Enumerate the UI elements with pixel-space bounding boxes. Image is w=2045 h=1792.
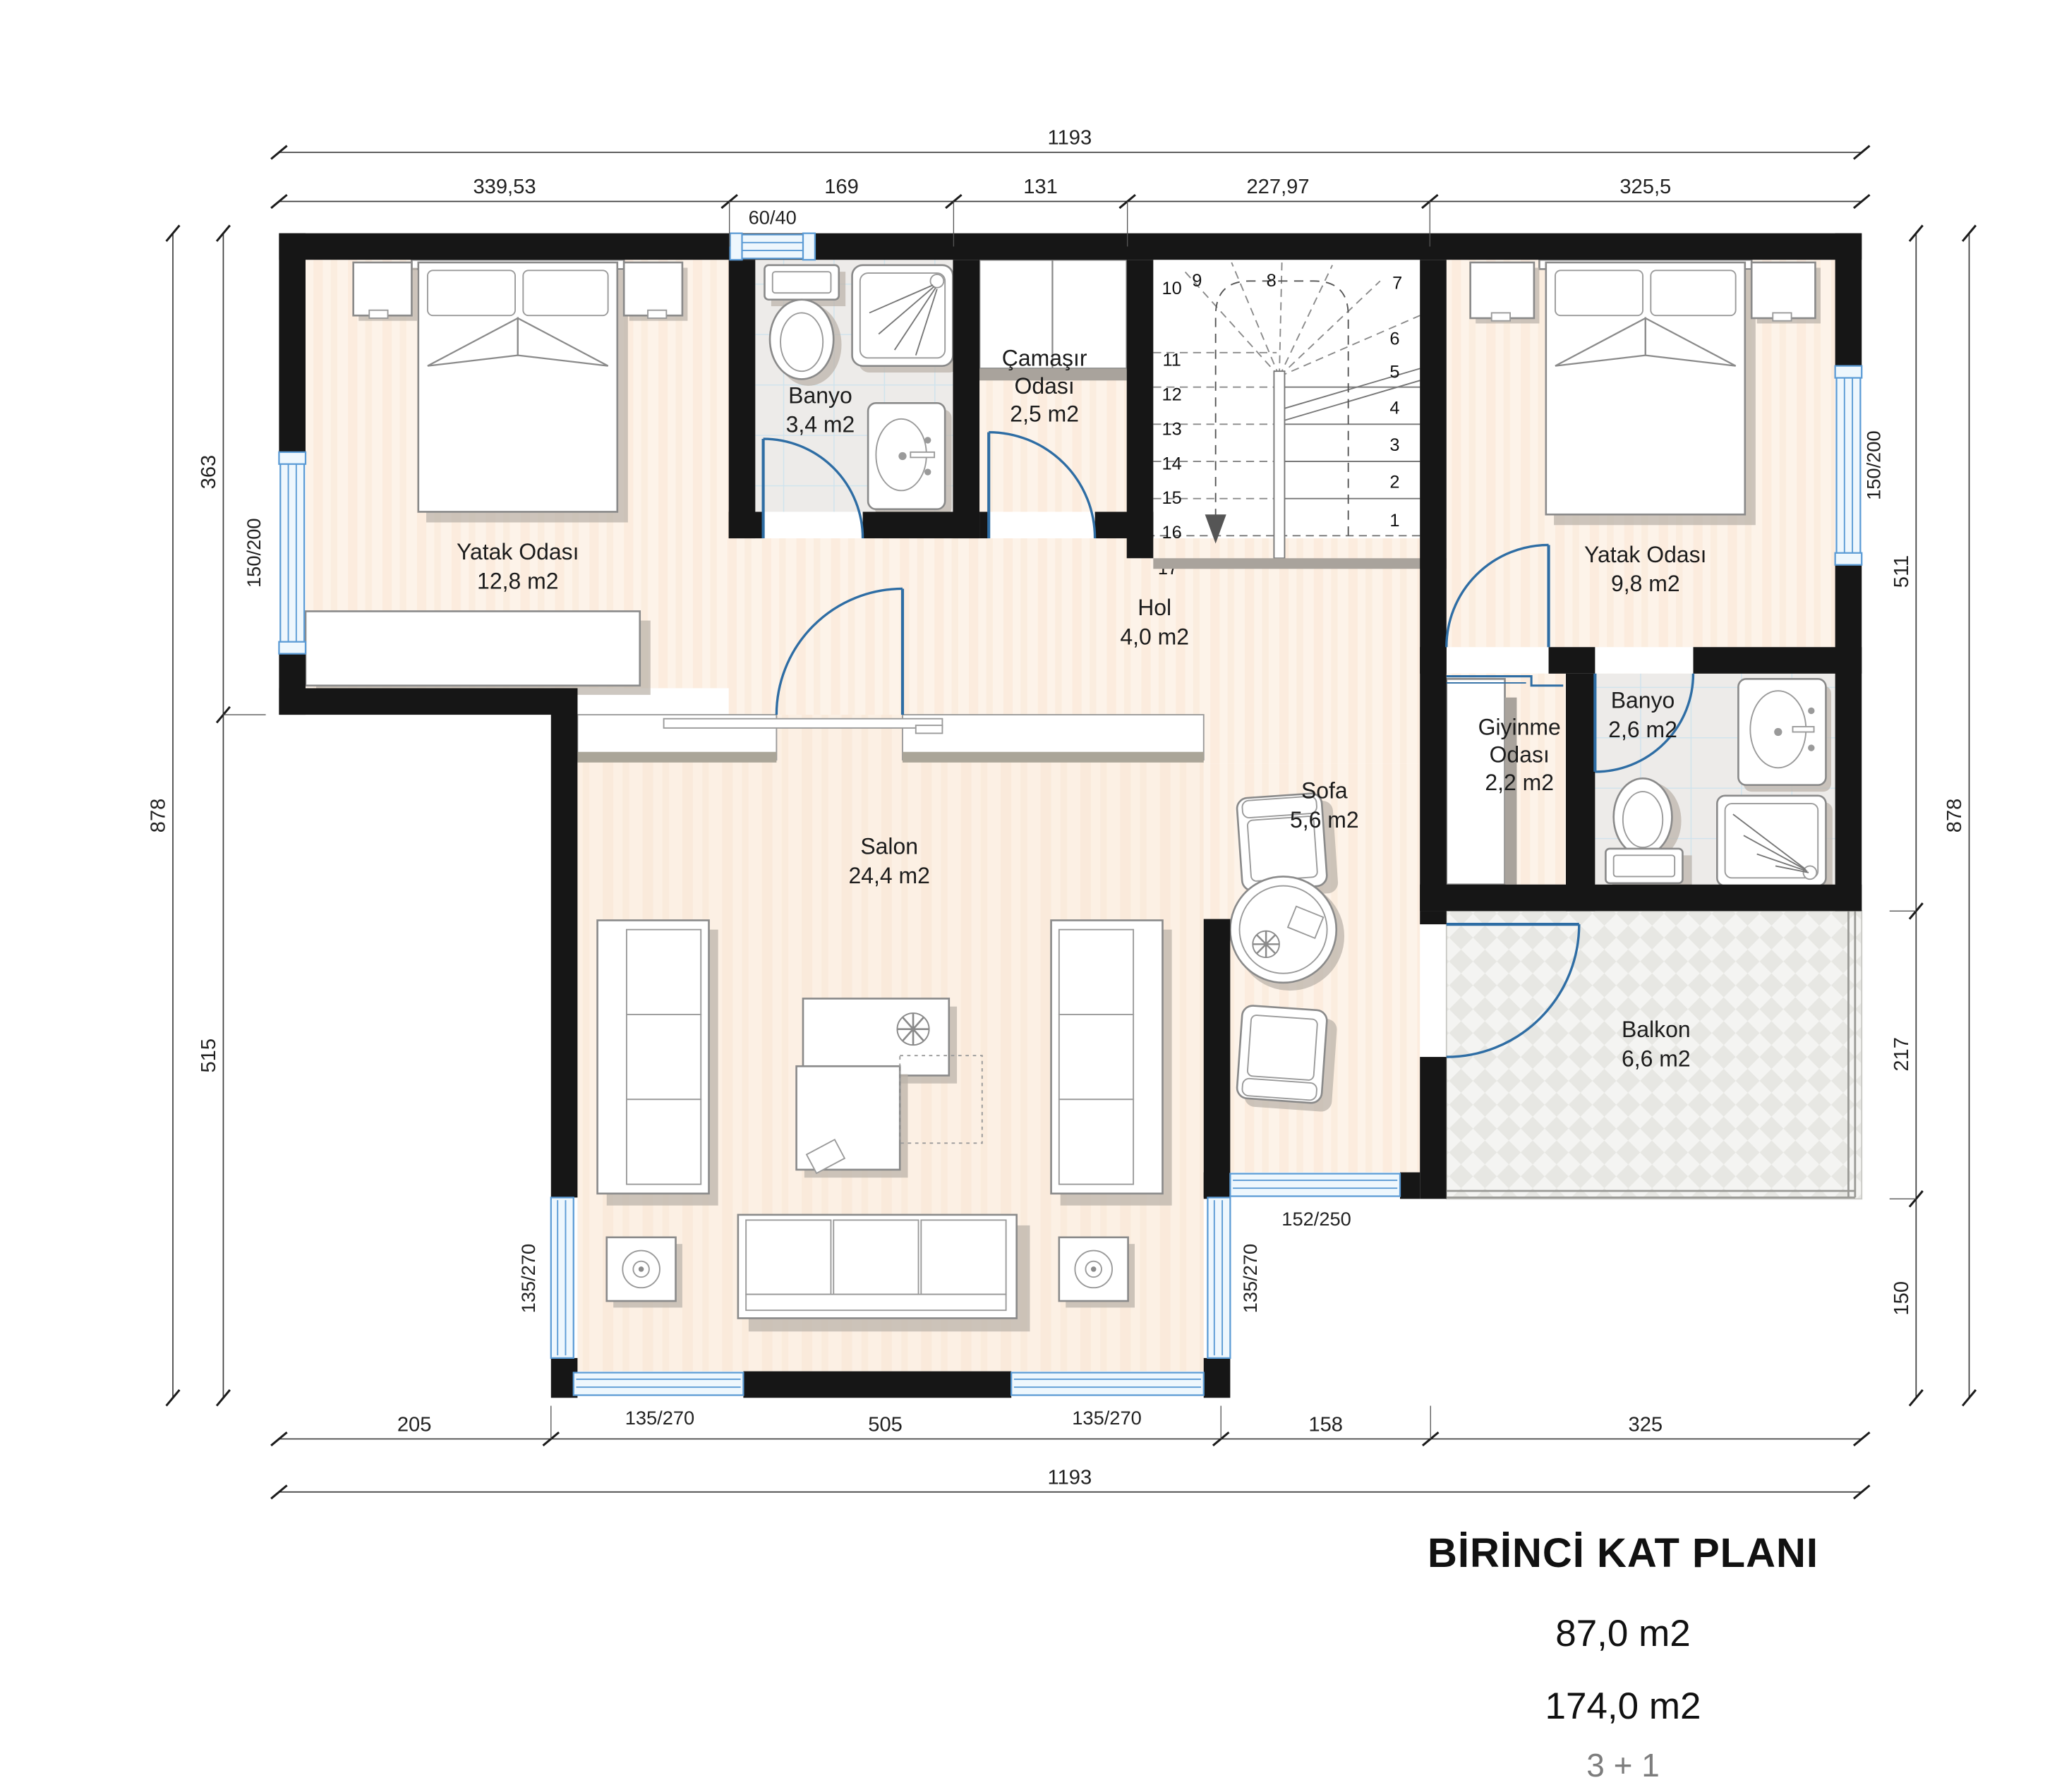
window-salon-bottom-right xyxy=(1011,1373,1204,1396)
sitting-label: Sofa xyxy=(1301,778,1348,804)
hall-area: 4,0 m2 xyxy=(1120,624,1189,649)
dresser xyxy=(306,611,651,694)
plan-title: BİRİNCİ KAT PLANI xyxy=(1305,1530,1941,1577)
shower-right xyxy=(1717,796,1833,892)
stair-number: 8 xyxy=(1267,271,1277,291)
sofa-left xyxy=(598,920,718,1205)
window-label: 135/270 xyxy=(1239,1244,1261,1314)
window-salon-left xyxy=(551,1197,574,1357)
living-area: 24,4 m2 xyxy=(848,863,929,888)
armchair-bottom xyxy=(1236,1005,1338,1113)
window-salon-bottom-left xyxy=(574,1373,744,1396)
dim-bottom-seg: 205 xyxy=(397,1413,432,1436)
stair-railing xyxy=(1274,371,1284,558)
laundry-label2: Odası xyxy=(1015,373,1075,399)
bedroom-left-area: 12,8 m2 xyxy=(477,568,558,593)
window-salon-right xyxy=(1207,1197,1230,1357)
dressing-label2: Odası xyxy=(1490,742,1550,768)
hall-label: Hol xyxy=(1138,595,1171,620)
bathroom-top-label: Banyo xyxy=(788,382,852,408)
stair-number: 1 xyxy=(1389,511,1399,531)
stair-number: 5 xyxy=(1389,363,1399,382)
dim-left-seg: 515 xyxy=(198,1039,220,1073)
window-bath-small xyxy=(730,234,815,260)
window-label: 150/200 xyxy=(243,518,265,588)
window-label: 152/250 xyxy=(1281,1208,1351,1230)
stairs-floor xyxy=(1153,260,1420,558)
bathroom-top-area: 3,4 m2 xyxy=(786,412,855,437)
dim-top-total: 1193 xyxy=(1048,127,1092,150)
window-right-bedroom xyxy=(1835,366,1862,565)
stair-number: 9 xyxy=(1192,271,1202,291)
window-label: 150/200 xyxy=(1863,430,1885,500)
stair-number: 12 xyxy=(1162,385,1182,405)
floor-area: 87,0 m2 xyxy=(1305,1612,1941,1655)
bedroom-right-label: Yatak Odası xyxy=(1584,542,1706,567)
dim-bottom-seg: 325 xyxy=(1628,1413,1663,1436)
dim-left-seg: 363 xyxy=(198,455,220,490)
dim-top-seg: 169 xyxy=(824,176,859,198)
title-block: BİRİNCİ KAT PLANI 87,0 m2 174,0 m2 3 + 1 xyxy=(1305,1530,1941,1784)
window-label: 135/270 xyxy=(517,1244,539,1314)
dim-right-seg: 511 xyxy=(1890,555,1913,588)
stair-number: 14 xyxy=(1162,454,1182,473)
laundry-label: Çamaşır xyxy=(1002,346,1087,371)
shower-top xyxy=(852,265,960,373)
laundry-area: 2,5 m2 xyxy=(1010,401,1079,427)
dim-left-outer: 878 xyxy=(147,799,170,833)
sofa-right xyxy=(1051,920,1172,1205)
dim-right-seg: 217 xyxy=(1890,1037,1913,1072)
bathroom-right-area: 2,6 m2 xyxy=(1608,717,1677,742)
window-label: 135/270 xyxy=(625,1407,695,1429)
stair-number: 13 xyxy=(1162,419,1182,439)
stair-number: 2 xyxy=(1389,473,1399,492)
sofa-bottom xyxy=(738,1215,1030,1331)
plant-icon xyxy=(1253,931,1279,958)
sink-right xyxy=(1738,679,1831,792)
stair-number: 7 xyxy=(1392,274,1402,293)
total-area: 174,0 m2 xyxy=(1305,1685,1941,1728)
floor-plan-drawing: 1 2 3 4 5 6 7 8 9 10 11 12 13 14 15 16 1… xyxy=(92,63,2045,1721)
stair-number: 3 xyxy=(1389,435,1399,455)
dressing-area: 2,2 m2 xyxy=(1485,770,1554,795)
stair-landing-edge xyxy=(1153,558,1446,569)
bathroom-right-label: Banyo xyxy=(1611,688,1675,713)
dim-bottom-total: 1193 xyxy=(1048,1466,1092,1489)
stair-number: 4 xyxy=(1389,398,1399,418)
stair-number: 16 xyxy=(1162,523,1182,543)
dim-right-outer: 878 xyxy=(1943,799,1966,833)
stair-number: 11 xyxy=(1162,351,1181,370)
balcony-label: Balkon xyxy=(1622,1017,1691,1042)
stair-number: 6 xyxy=(1389,329,1399,349)
sink-top xyxy=(868,403,951,516)
stair-number: 15 xyxy=(1162,488,1182,508)
dim-top-seg: 339,53 xyxy=(473,176,536,198)
window-label: 60/40 xyxy=(749,206,797,228)
sitting-area: 5,6 m2 xyxy=(1290,807,1359,833)
plant-icon xyxy=(897,1013,929,1045)
stair-number: 10 xyxy=(1162,279,1182,298)
window-sofa-bottom xyxy=(1230,1174,1400,1197)
bedroom-right-area: 9,8 m2 xyxy=(1611,571,1680,596)
dim-right-seg: 150 xyxy=(1890,1281,1913,1316)
bed-right xyxy=(1539,260,1755,525)
dressing-label: Giyinme xyxy=(1478,714,1561,739)
window-left-bedroom xyxy=(279,452,306,654)
bedroom-left-label: Yatak Odası xyxy=(457,539,579,564)
dim-top-seg: 227,97 xyxy=(1246,176,1309,198)
floor-plan-page: 1 2 3 4 5 6 7 8 9 10 11 12 13 14 15 16 1… xyxy=(0,0,2045,1792)
room-count: 3 + 1 xyxy=(1305,1746,1941,1784)
dim-bottom-seg: 158 xyxy=(1308,1413,1343,1436)
balcony-area: 6,6 m2 xyxy=(1622,1046,1691,1071)
bed-left xyxy=(411,260,627,522)
dim-top-seg: 131 xyxy=(1023,176,1058,198)
tv xyxy=(664,719,943,728)
window-label: 135/270 xyxy=(1072,1407,1142,1429)
dim-top-seg: 325,5 xyxy=(1619,176,1671,198)
living-label: Salon xyxy=(860,833,918,859)
dim-bottom-seg: 505 xyxy=(868,1413,903,1436)
